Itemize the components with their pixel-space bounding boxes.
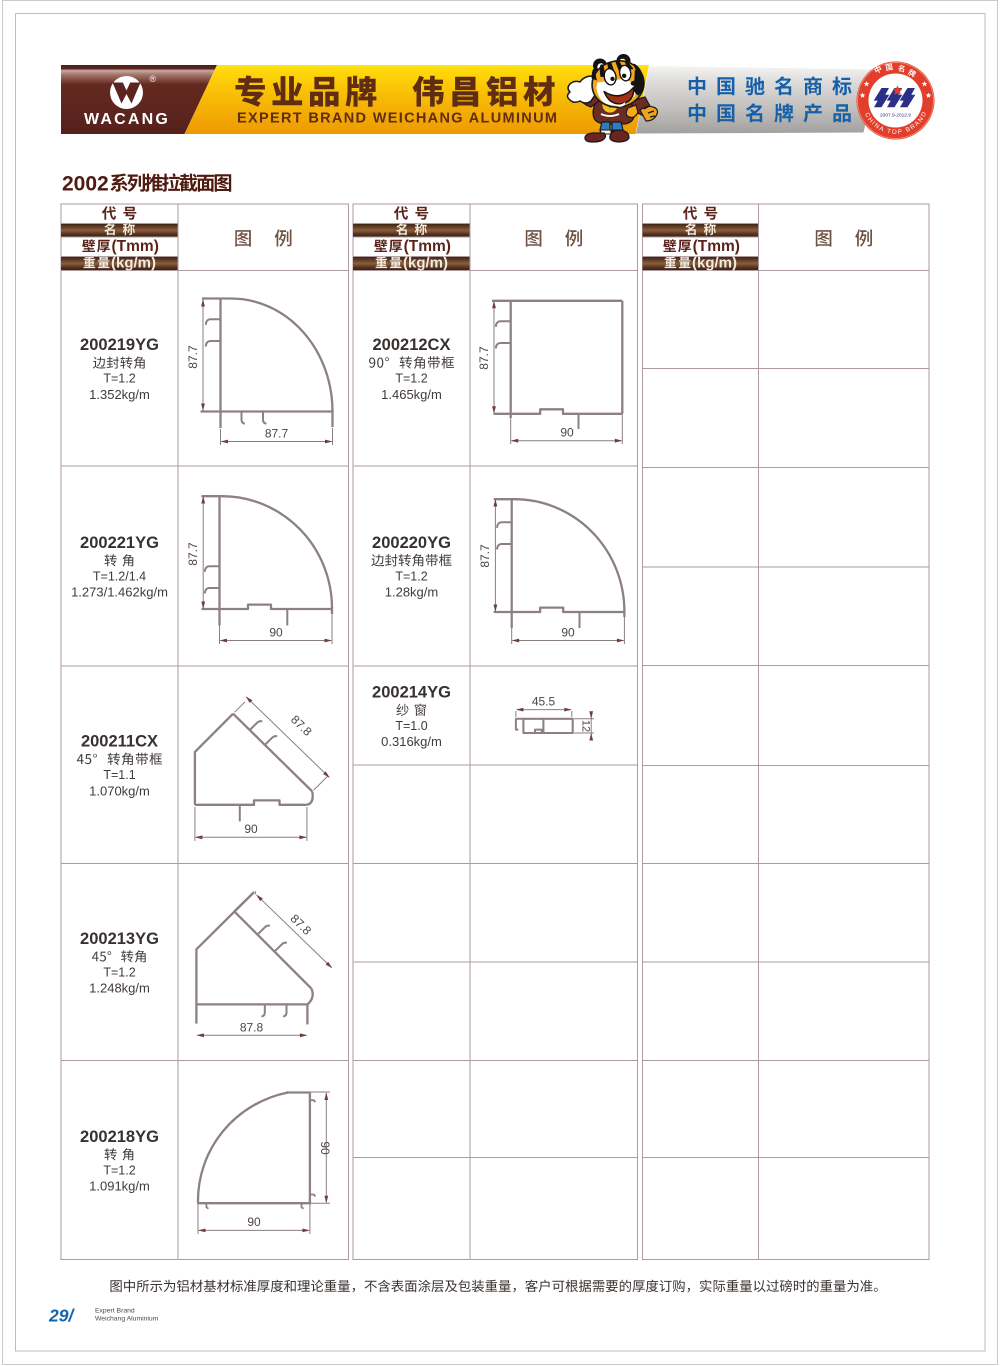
svg-text:Expert Brand: Expert Brand (95, 1308, 135, 1315)
svg-text:Weichang Aluminium: Weichang Aluminium (95, 1316, 159, 1323)
svg-text:29/: 29/ (48, 1306, 75, 1326)
